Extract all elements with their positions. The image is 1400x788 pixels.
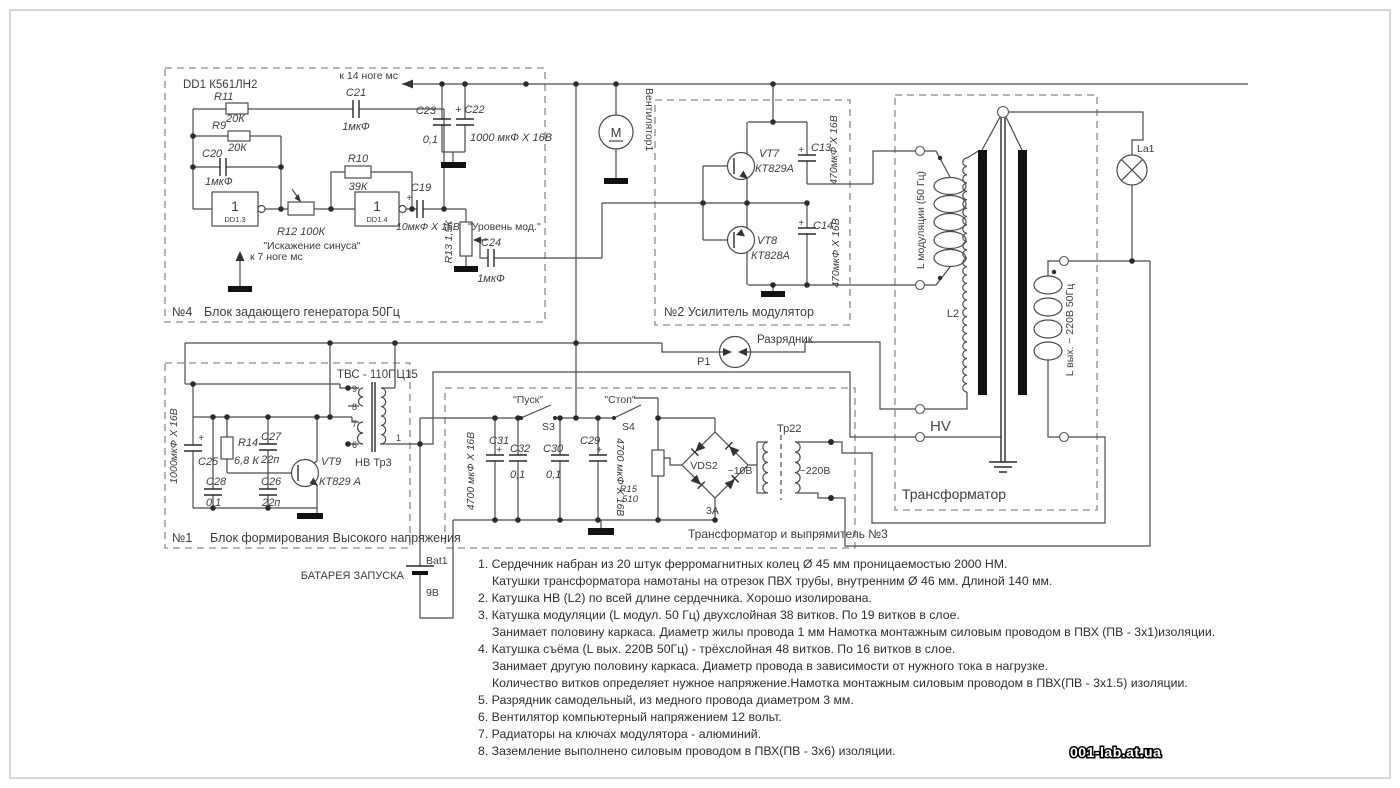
block-rectifier-outline bbox=[445, 388, 855, 548]
to-pin14-label: к 14 ноге мс bbox=[339, 70, 398, 82]
hv-generator-schematic: DD1 К561ЛН2 к 14 ноге мс к 7 ноге мс R11… bbox=[0, 0, 1400, 788]
s3-ref: S3 bbox=[542, 421, 555, 433]
r9-value: 20К bbox=[227, 142, 247, 154]
block1-number: №1 bbox=[172, 531, 192, 545]
hv-electrode bbox=[1001, 118, 1005, 462]
c30-value: 0,1 bbox=[546, 469, 561, 481]
c24-value: 1мкФ bbox=[477, 273, 505, 285]
c26-ref: C26 bbox=[261, 476, 282, 488]
c19-ref: C19 bbox=[411, 182, 431, 194]
r13-ref: R13 1,5К bbox=[443, 220, 455, 264]
c27-ref: C27 bbox=[261, 431, 282, 443]
note-line: Катушки трансформатора намотаны на отрез… bbox=[492, 574, 1052, 588]
dd1-label: DD1 К561ЛН2 bbox=[183, 79, 257, 91]
capacitor-c24 bbox=[488, 249, 494, 267]
c19-plus: + bbox=[406, 193, 412, 204]
note-line: 2. Катушка НВ (L2) по всей длине сердечн… bbox=[478, 591, 872, 605]
vt8-type: КТ828А bbox=[751, 250, 790, 262]
c20-value: 1мкФ bbox=[205, 176, 233, 188]
tr22-10v-label: ~10В bbox=[728, 465, 753, 477]
core-bar bbox=[1018, 150, 1027, 395]
hv-label: HV bbox=[930, 418, 951, 435]
tvs-label: ТВС - 110ПЦ15 bbox=[337, 369, 418, 381]
c21-value: 1мкФ bbox=[342, 121, 370, 133]
to-pin7-arrow-icon bbox=[236, 251, 245, 261]
tr3-label: НВ Тр3 bbox=[355, 457, 392, 469]
transformer-title: Трансформатор bbox=[902, 486, 1006, 502]
tr22-220v-label: ~220В bbox=[800, 465, 831, 477]
vds2-label: VDS2 bbox=[690, 460, 718, 472]
to-pin7-label: к 7 ноге мс bbox=[250, 251, 303, 263]
sine-distortion-label: "Искажение синуса" bbox=[263, 240, 361, 252]
vt7-type: КТ829А bbox=[755, 163, 794, 175]
battery-voltage: 9В bbox=[426, 587, 439, 599]
transistor-vt9 bbox=[292, 460, 319, 487]
note-line: Занимает половину каркаса. Диаметр жилы … bbox=[492, 625, 1215, 639]
c26-value: 22п bbox=[261, 497, 280, 509]
output-coil-label: L вых. ~ 220В 50Гц bbox=[1064, 284, 1076, 376]
note-line: 4. Катушка съёма (L вых. 220В 50Гц) - тр… bbox=[478, 642, 955, 656]
c23-value: 0,1 bbox=[423, 134, 438, 146]
watermark: 001-lab.at.ua bbox=[1070, 744, 1161, 760]
vt8-ref: VT8 bbox=[757, 235, 778, 247]
gate1-symbol: 1 bbox=[231, 198, 239, 214]
l2-label: L2 bbox=[947, 308, 959, 320]
c20-ref: C20 bbox=[202, 148, 223, 160]
spark-gap-p1 bbox=[720, 337, 751, 368]
r13-wiper-arrow-icon bbox=[473, 237, 481, 244]
block4-title: Блок задающего генератора 50Гц bbox=[204, 305, 400, 319]
capacitor-c32 bbox=[509, 455, 527, 461]
c23-ref: C23 bbox=[416, 105, 437, 117]
to-pin14-arrow-icon bbox=[402, 80, 413, 89]
c14-plus: + bbox=[798, 218, 804, 229]
c14-value: 470мкФ X 16В bbox=[830, 218, 842, 288]
transformer-tr22 bbox=[763, 435, 800, 500]
vt9-ref: VT9 bbox=[321, 456, 341, 468]
fan-m-symbol: M bbox=[611, 125, 622, 140]
l2-coil bbox=[963, 158, 967, 392]
c31-plus: + bbox=[496, 445, 502, 456]
c25-value: 1000мкФ X 16В bbox=[168, 408, 180, 483]
s4-ref: S4 bbox=[622, 421, 635, 433]
c22-value: 1000 мкФ X 16В bbox=[470, 132, 552, 144]
capacitor-c26 bbox=[259, 489, 277, 495]
gate2-ref: DD1.4 bbox=[366, 215, 387, 224]
r14-value: 6,8 К bbox=[234, 455, 259, 467]
r11-ref: R11 bbox=[214, 91, 233, 103]
fuse-3a-label: 3А bbox=[706, 505, 719, 517]
hv-transformer bbox=[934, 107, 1062, 473]
note-line: 1. Сердечник набран из 20 штук ферромагн… bbox=[478, 557, 1007, 571]
r12-ref: R12 100К bbox=[277, 226, 326, 238]
core-bar bbox=[978, 150, 987, 395]
note-line: Количество витков определяет нужное напр… bbox=[492, 676, 1188, 690]
resistor-r10 bbox=[345, 166, 371, 178]
capacitor-c28 bbox=[204, 489, 222, 495]
spark-gap-label: Разрядник bbox=[757, 334, 814, 346]
block4-number: №4 bbox=[172, 305, 192, 319]
c29-plus: + bbox=[596, 445, 602, 456]
block3-title: Трансформатор и выпрямитель №3 bbox=[688, 527, 888, 541]
r10-ref: R10 bbox=[348, 153, 369, 165]
gate-dd1-4-bubble-icon bbox=[399, 206, 406, 213]
battery-bat1 bbox=[406, 566, 434, 575]
note-line: 8. Заземление выполнено силовым проводом… bbox=[478, 744, 896, 758]
fan-label: Вентилятор1 bbox=[643, 88, 655, 151]
note-line: 7. Радиаторы на ключах модулятора - алюм… bbox=[478, 727, 761, 741]
capacitor-c21 bbox=[353, 100, 359, 118]
battery-caption: БАТАРЕЯ ЗАПУСКА bbox=[301, 570, 405, 582]
spark-gap-ref: P1 bbox=[697, 356, 710, 368]
capacitor-c20 bbox=[220, 158, 226, 176]
r15-value: 510 bbox=[622, 494, 639, 505]
tr3-pin6: 6 bbox=[352, 440, 357, 450]
c32-value: 0,1 bbox=[510, 469, 525, 481]
c25-ref: C25 bbox=[198, 456, 219, 468]
capacitor-c23 bbox=[433, 119, 451, 125]
tr3-pin1: 1 bbox=[396, 433, 401, 443]
block2-title: №2 Усилитель модулятор bbox=[664, 305, 814, 319]
schematic-page: DD1 К561ЛН2 к 14 ноге мс к 7 ноге мс R11… bbox=[0, 0, 1400, 788]
resistor-r12 bbox=[288, 202, 314, 215]
modulation-coil-label: L модуляции (50 Гц) bbox=[915, 171, 927, 269]
hv-electrode-terminal bbox=[998, 107, 1009, 118]
resistor-r14 bbox=[221, 437, 233, 459]
c27-value: 22п bbox=[260, 454, 279, 466]
tr3-pin7: 7 bbox=[352, 419, 357, 429]
battery-ref: Bat1 bbox=[426, 555, 448, 567]
vt9-type: КТ829 А bbox=[319, 476, 361, 488]
mod-level-label: "Уровень мод." bbox=[468, 221, 541, 233]
note-line: Занимает другую половину каркаса. Диамет… bbox=[492, 659, 1048, 673]
resistor-r15 bbox=[652, 450, 664, 476]
c28-value: 0,1 bbox=[206, 497, 221, 509]
r10-value: 39К bbox=[349, 181, 368, 193]
block1-title: Блок формирования Высокого напряжения bbox=[210, 531, 461, 545]
start-switch-label: "Пуск" bbox=[513, 394, 543, 406]
r12-wiper-arrow-icon bbox=[295, 194, 302, 202]
tr3-pin9: 9 bbox=[352, 384, 357, 394]
diode-icon bbox=[724, 475, 738, 489]
c13-value: 470мкФ X 16В bbox=[828, 115, 840, 185]
stop-switch-label: "Стоп" bbox=[604, 394, 636, 406]
modulation-coil bbox=[934, 178, 966, 267]
c25-plus: + bbox=[198, 433, 204, 444]
tr22-label: Тр22 bbox=[777, 423, 801, 435]
capacitor-c22 bbox=[456, 119, 474, 125]
c32-ref: C32 bbox=[510, 443, 530, 455]
capacitor-c30 bbox=[551, 455, 569, 461]
earth-ground-icon bbox=[989, 462, 1017, 472]
output-coil bbox=[1034, 276, 1062, 360]
r9-ref: R9 bbox=[212, 120, 226, 132]
c21-ref: C21 bbox=[346, 87, 366, 99]
r11-value: 20К bbox=[225, 113, 245, 125]
tr3-pin8: 8 bbox=[352, 402, 357, 412]
gate-dd1-3-bubble-icon bbox=[258, 206, 265, 213]
r14-ref: R14 bbox=[238, 437, 258, 449]
note-line: 6. Вентилятор компьютерный напряжением 1… bbox=[478, 710, 782, 724]
la1-label: La1 bbox=[1137, 143, 1155, 155]
c13-plus: + bbox=[798, 145, 804, 156]
capacitor-c27 bbox=[259, 444, 277, 450]
diode-icon bbox=[690, 474, 704, 488]
c24-ref: C24 bbox=[481, 237, 501, 249]
c30-ref: C30 bbox=[543, 443, 564, 455]
transistor-vt7 bbox=[728, 153, 755, 180]
gate2-symbol: 1 bbox=[373, 198, 381, 214]
resistor-r9 bbox=[228, 131, 250, 141]
transformer-tr3 bbox=[358, 382, 386, 452]
block-modulator-outline bbox=[655, 100, 850, 325]
c22-ref: + C22 bbox=[455, 104, 485, 116]
vt7-ref: VT7 bbox=[759, 148, 780, 160]
c28-ref: C28 bbox=[206, 476, 227, 488]
capacitor-c19 bbox=[417, 200, 423, 218]
note-line: 3. Катушка модуляции (L модул. 50 Гц) дв… bbox=[478, 608, 960, 622]
capacitor-c25 bbox=[184, 445, 202, 451]
c31-value: 4700 мкФ X 16В bbox=[465, 432, 477, 510]
note-line: 5. Разрядник самодельный, из медного про… bbox=[478, 693, 854, 707]
lamp-la1 bbox=[1117, 155, 1147, 185]
gate1-ref: DD1.3 bbox=[224, 215, 245, 224]
